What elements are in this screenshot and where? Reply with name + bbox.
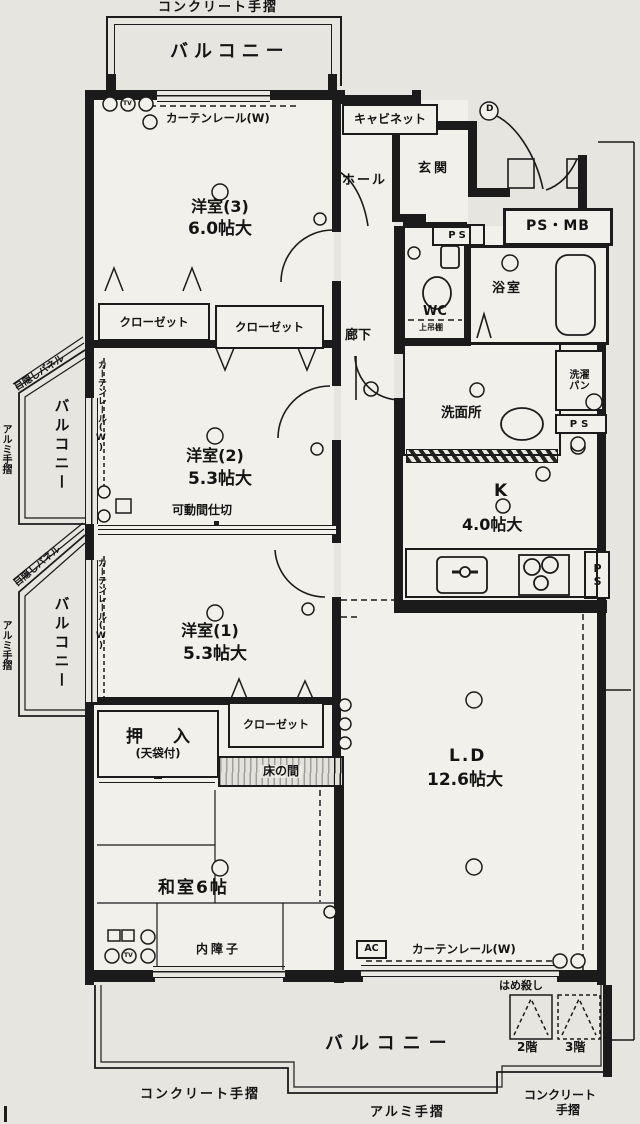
yo2-name-label: 洋室(2) (145, 447, 285, 465)
bottom-rail-right-label-1: コンクリート (524, 1089, 596, 1102)
yo3-name-label: 洋室(3) (150, 198, 290, 216)
top-balcony-label: バルコニー (170, 42, 290, 62)
bottom-rail-left-label: コンクリート手摺 (140, 1088, 260, 1102)
hall-label: ホール (342, 174, 387, 188)
tv-mark-washitsu-label: TV (124, 953, 133, 960)
curtain-rail-top-label: カーテンレール(W) (166, 112, 270, 125)
bathtub (556, 255, 595, 335)
tv-mark-top-label: TV (123, 101, 132, 108)
yo3-size-label: 6.0帖大 (150, 220, 290, 239)
ld-size-label: 12.6帖大 (427, 771, 503, 790)
entry-mark-label: D (486, 105, 493, 115)
movable-partition-label: 可動間仕切 (172, 504, 232, 517)
corridor-label: 廊下 (345, 329, 371, 343)
floor2-label: 2階 (517, 1041, 537, 1054)
burner (542, 557, 558, 573)
faucet-knob (460, 567, 470, 577)
yo2-size-label: 5.3帖大 (145, 470, 295, 489)
washroom-label: 洗面所 (441, 406, 482, 421)
balcony-left-upper-label: バルコニー (53, 398, 70, 493)
curtain-rail-left-lower-label: カーテンレール(W) (95, 558, 105, 651)
stair-hatch-squares (510, 995, 600, 1039)
fixtures (406, 246, 597, 597)
wash-basin (501, 408, 543, 440)
wc-shelf-label: 上吊棚 (419, 324, 443, 333)
balcony-left-lower-label: バルコニー (53, 596, 70, 691)
toilet-tank (441, 246, 459, 268)
curtain-rail-left-upper-label: カーテンレール(W) (95, 360, 105, 453)
burner (534, 576, 548, 590)
bottom-rail-right-label-2: 手摺 (556, 1104, 580, 1117)
yo1-name-label: 洋室(1) (140, 622, 280, 640)
kitchen-name-label: K (494, 482, 507, 501)
top-rail-label: コンクリート手摺 (158, 1, 278, 15)
floor3-label: 3階 (565, 1041, 585, 1054)
fixed-window-label: はめ殺し (499, 980, 543, 992)
washitsu-label: 和室6帖 (158, 879, 229, 898)
ld-name-label: L.D (449, 747, 486, 766)
inner-shoji-label: 内障子 (196, 943, 241, 956)
burner (524, 559, 540, 575)
yo1-size-label: 5.3帖大 (140, 645, 290, 664)
bottom-balcony-label: バルコニー (325, 1034, 455, 1054)
entrance-label: 玄関 (418, 162, 450, 176)
alumi-rail-lower-label: アルミ手摺 (0, 620, 11, 670)
alumi-rail-upper-label: アルミ手摺 (0, 424, 11, 474)
wc-label: WC (423, 305, 447, 319)
door-arcs (275, 113, 580, 597)
neighbor-lines (597, 142, 634, 1040)
curtain-rail-bottom-label: カーテンレール(W) (412, 943, 516, 956)
bathroom-label: 浴室 (492, 282, 522, 296)
floor-plan: キャビネット PS・MB PS 洗濯パン PS クローゼット クローゼット クロ… (0, 0, 640, 1124)
bottom-rail-mid-label: アルミ手摺 (370, 1106, 445, 1120)
kitchen-size-label: 4.0帖大 (462, 516, 522, 534)
